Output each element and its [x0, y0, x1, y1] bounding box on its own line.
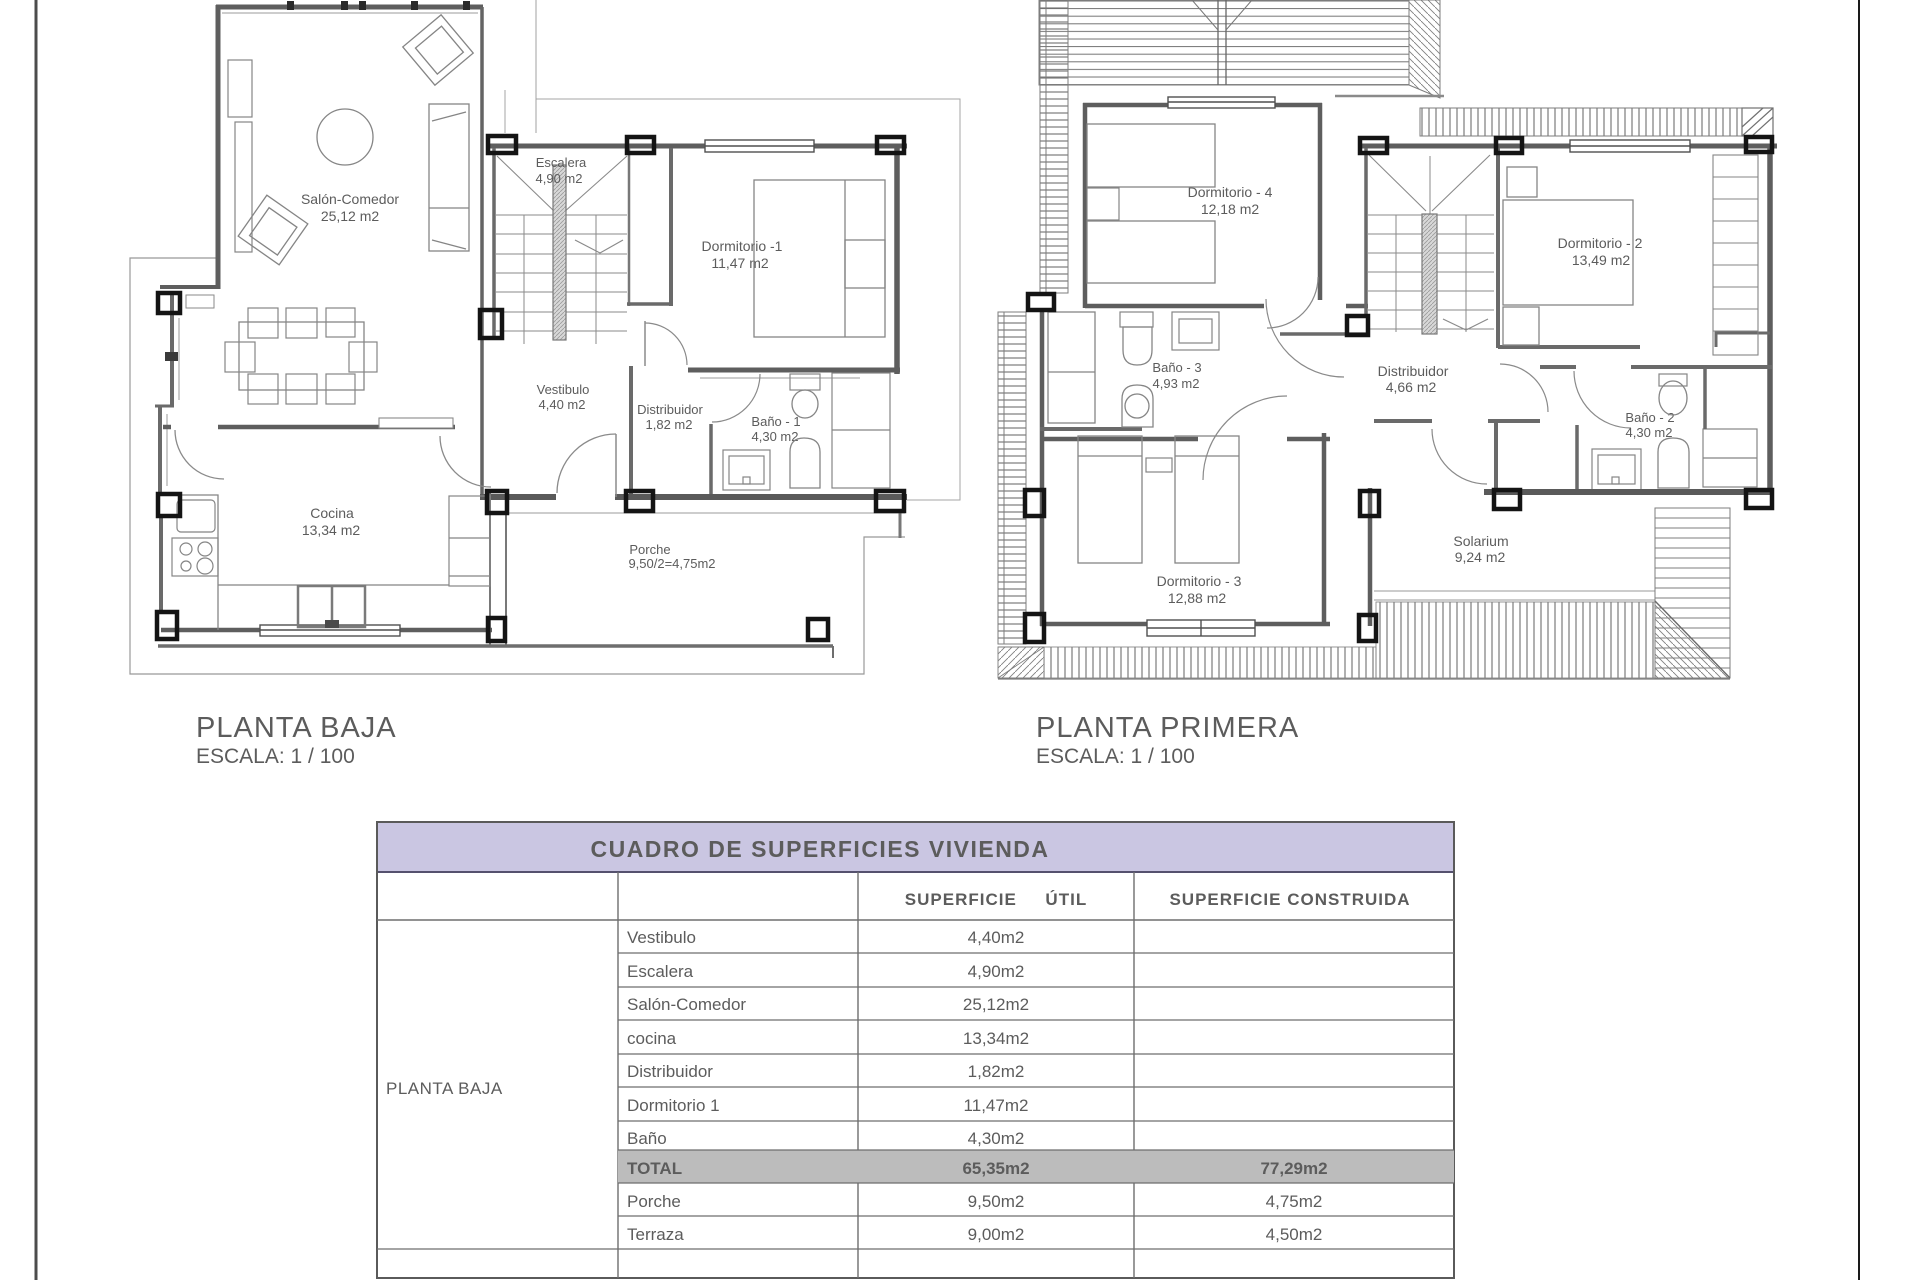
- svg-text:Distribuidor: Distribuidor: [637, 402, 703, 417]
- svg-text:1,82m2: 1,82m2: [968, 1062, 1025, 1081]
- svg-text:ESCALA: 1 / 100: ESCALA: 1 / 100: [196, 745, 355, 768]
- svg-text:SUPERFICIE ÚTIL: SUPERFICIE ÚTIL: [905, 890, 1087, 909]
- svg-text:Baño - 3: Baño - 3: [1152, 360, 1201, 375]
- svg-text:4,30 m2: 4,30 m2: [1626, 425, 1673, 440]
- svg-text:PLANTA BAJA: PLANTA BAJA: [386, 1079, 503, 1098]
- svg-text:PLANTA BAJA: PLANTA BAJA: [196, 712, 397, 744]
- svg-text:4,40 m2: 4,40 m2: [539, 397, 586, 412]
- svg-text:77,29m2: 77,29m2: [1260, 1159, 1327, 1178]
- svg-text:12,18 m2: 12,18 m2: [1201, 201, 1260, 217]
- svg-text:Dormitorio - 2: Dormitorio - 2: [1558, 235, 1643, 251]
- svg-text:25,12 m2: 25,12 m2: [321, 208, 380, 224]
- svg-text:Terraza: Terraza: [627, 1225, 684, 1244]
- svg-text:4,30 m2: 4,30 m2: [752, 429, 799, 444]
- svg-text:TOTAL: TOTAL: [627, 1159, 682, 1178]
- svg-text:9,00m2: 9,00m2: [968, 1225, 1025, 1244]
- svg-text:Dormitorio - 3: Dormitorio - 3: [1157, 573, 1242, 589]
- svg-text:65,35m2: 65,35m2: [962, 1159, 1029, 1178]
- svg-text:4,90 m2: 4,90 m2: [536, 171, 583, 186]
- svg-text:Baño: Baño: [627, 1129, 667, 1148]
- svg-text:cocina: cocina: [627, 1029, 677, 1048]
- svg-text:4,66 m2: 4,66 m2: [1386, 379, 1437, 395]
- svg-text:Baño - 1: Baño - 1: [751, 414, 800, 429]
- svg-text:Baño - 2: Baño - 2: [1625, 410, 1674, 425]
- svg-text:12,88 m2: 12,88 m2: [1168, 590, 1227, 606]
- svg-text:Porche: Porche: [629, 542, 670, 557]
- svg-text:13,34 m2: 13,34 m2: [302, 522, 361, 538]
- svg-text:Salón-Comedor: Salón-Comedor: [301, 191, 399, 207]
- svg-text:Cocina: Cocina: [310, 505, 354, 521]
- svg-text:Distribuidor: Distribuidor: [627, 1062, 713, 1081]
- svg-text:13,34m2: 13,34m2: [963, 1029, 1029, 1048]
- svg-text:CUADRO DE SUPERFICIES VIVIEND: CUADRO DE SUPERFICIES VIVIENDA: [590, 836, 1049, 862]
- svg-text:Distribuidor: Distribuidor: [1378, 363, 1449, 379]
- svg-text:9,50/2=4,75m2: 9,50/2=4,75m2: [628, 556, 715, 571]
- svg-text:ESCALA: 1 / 100: ESCALA: 1 / 100: [1036, 745, 1195, 768]
- svg-text:1,82 m2: 1,82 m2: [646, 417, 693, 432]
- svg-text:11,47 m2: 11,47 m2: [711, 255, 769, 271]
- svg-text:Dormitorio -1: Dormitorio -1: [702, 238, 783, 254]
- svg-text:Dormitorio 1: Dormitorio 1: [627, 1096, 720, 1115]
- svg-text:4,50m2: 4,50m2: [1266, 1225, 1323, 1244]
- svg-text:Escalera: Escalera: [536, 155, 587, 170]
- svg-text:Escalera: Escalera: [627, 962, 694, 981]
- svg-text:Salón-Comedor: Salón-Comedor: [627, 995, 746, 1014]
- svg-text:PLANTA PRIMERA: PLANTA PRIMERA: [1036, 712, 1299, 744]
- svg-text:25,12m2: 25,12m2: [963, 995, 1029, 1014]
- svg-text:Vestibulo: Vestibulo: [627, 928, 696, 947]
- svg-text:11,47m2: 11,47m2: [964, 1096, 1029, 1115]
- svg-text:4,90m2: 4,90m2: [968, 962, 1025, 981]
- svg-text:Porche: Porche: [627, 1192, 681, 1211]
- svg-text:4,93 m2: 4,93 m2: [1153, 376, 1200, 391]
- svg-text:4,40m2: 4,40m2: [968, 928, 1025, 947]
- svg-text:9,24 m2: 9,24 m2: [1455, 549, 1506, 565]
- svg-text:4,30m2: 4,30m2: [968, 1129, 1025, 1148]
- svg-text:9,50m2: 9,50m2: [968, 1192, 1025, 1211]
- svg-text:Solarium: Solarium: [1453, 533, 1508, 549]
- svg-text:4,75m2: 4,75m2: [1266, 1192, 1323, 1211]
- svg-text:13,49 m2: 13,49 m2: [1572, 252, 1631, 268]
- svg-text:Vestibulo: Vestibulo: [537, 382, 590, 397]
- svg-text:SUPERFICIE CONSTRUIDA: SUPERFICIE CONSTRUIDA: [1169, 890, 1410, 909]
